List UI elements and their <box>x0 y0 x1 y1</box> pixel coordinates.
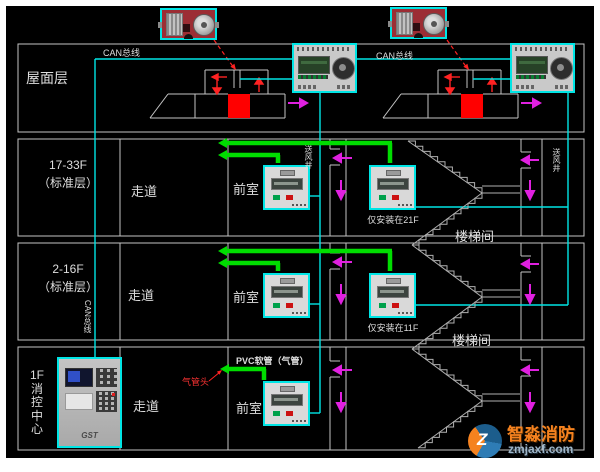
duct-stub <box>445 21 449 27</box>
controller-bottom-marks <box>555 85 569 89</box>
floor-17-33-sublabel: （标准层） <box>18 174 118 191</box>
cabinet-alarm-led <box>112 393 115 396</box>
stairwell-label: 楼梯间 <box>452 330 491 349</box>
corridor-label: 走道 <box>131 181 157 200</box>
damper-actuator-photo <box>390 7 447 39</box>
roof-floor-label: 屋面层 <box>26 68 68 88</box>
front-room-label: 前室 <box>233 287 259 306</box>
fire-control-host-cabinet: GST <box>57 357 122 448</box>
actuator-fins <box>166 13 183 36</box>
can-bus-label: CAN总线 <box>376 49 413 62</box>
cabinet-button-grid <box>96 368 117 387</box>
controller-keypad-icon <box>550 57 573 80</box>
only-21f-label: 仅安装在21F <box>360 213 426 226</box>
duct-stub <box>215 22 219 28</box>
supply-shaft-label: 送风井 <box>551 148 562 172</box>
actuator-motor-icon <box>423 13 445 35</box>
air-tube-head-label: 气管头 <box>182 375 209 388</box>
pvc-pipe-label: PVC软管（气管） <box>236 354 309 367</box>
cable-gland <box>184 34 193 39</box>
floor-17-33-label: 17-33F <box>18 158 118 172</box>
actuator-fins <box>396 12 413 35</box>
fire-damper-right <box>461 94 483 118</box>
damper-actuator-photo <box>160 8 217 40</box>
controller-key-row <box>516 75 546 79</box>
duct-stub <box>158 22 162 28</box>
stairwell-label: 楼梯间 <box>455 226 494 245</box>
drawing-page: GST CAN总线 CAN总线 屋面层 17-33F （标准层） 2-16F （… <box>0 0 600 472</box>
corridor-label: 走道 <box>133 396 159 415</box>
controller-lcd <box>516 56 548 74</box>
watermark-logo-icon: Z <box>468 424 502 458</box>
supply-shaft-label: 送风井 <box>303 145 314 169</box>
front-room-label: 前室 <box>236 398 262 417</box>
can-bus-label: CAN总线 <box>103 46 140 59</box>
actuator-body <box>413 23 420 31</box>
pressure-controller-panel <box>510 43 575 93</box>
controller-key-row <box>298 75 328 79</box>
controller-keypad-icon <box>332 57 355 80</box>
staircase <box>408 141 520 448</box>
pressure-sensor-panel <box>263 165 310 210</box>
only-11f-label: 仅安装在11F <box>360 321 426 334</box>
actuator-body <box>183 24 190 32</box>
front-room-label: 前室 <box>233 179 259 198</box>
watermark-site: zmjaxf.com <box>508 442 573 456</box>
controller-lcd <box>298 56 330 74</box>
watermark: Z 智淼消防 zmjaxf.com <box>468 418 600 464</box>
controller-bottom-marks <box>298 85 316 89</box>
controller-text-strip <box>297 47 352 51</box>
floor-2-16-label: 2-16F <box>18 262 118 276</box>
corridor-label: 走道 <box>128 285 154 304</box>
cabinet-keypad <box>65 393 93 410</box>
air-head-leader <box>209 372 220 381</box>
pressure-sensor-panel <box>263 273 310 318</box>
air-pipe-arrowheads <box>218 138 229 374</box>
fire-damper-left <box>228 94 250 118</box>
floor-1f-label: 1F 消 控 中 心 <box>22 369 52 437</box>
controller-text-strip <box>515 47 570 51</box>
floor-2-16-sublabel: （标准层） <box>18 278 118 295</box>
brand-label: GST <box>59 431 120 440</box>
can-bus-vertical-label: CAN总线 <box>82 300 93 333</box>
duct-stub <box>388 21 392 27</box>
cabinet-screen <box>65 368 93 387</box>
pressure-sensor-panel <box>263 381 310 426</box>
controller-bottom-marks <box>337 85 351 89</box>
pressure-sensor-panel <box>369 273 416 318</box>
controller-bottom-marks <box>516 85 534 89</box>
cable-gland <box>414 33 423 38</box>
actuator-motor-icon <box>193 14 215 36</box>
pressure-controller-panel <box>292 43 357 93</box>
pressure-sensor-panel <box>369 165 416 210</box>
